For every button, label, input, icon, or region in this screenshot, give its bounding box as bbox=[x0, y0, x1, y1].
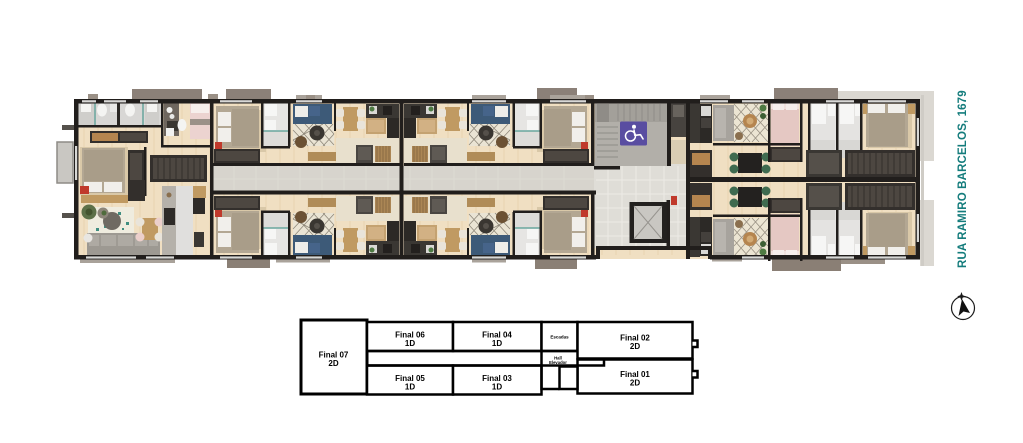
svg-text:2D: 2D bbox=[630, 342, 640, 351]
svg-text:1D: 1D bbox=[492, 383, 502, 392]
svg-text:1D: 1D bbox=[492, 339, 502, 348]
svg-text:1D: 1D bbox=[405, 339, 415, 348]
svg-text:2D: 2D bbox=[630, 379, 640, 388]
svg-text:1D: 1D bbox=[405, 383, 415, 392]
svg-text:2D: 2D bbox=[328, 359, 338, 368]
svg-text:Elevador: Elevador bbox=[549, 360, 567, 365]
svg-text:RUA RAMIRO BARCELOS, 1679: RUA RAMIRO BARCELOS, 1679 bbox=[957, 90, 969, 268]
svg-text:Escadas: Escadas bbox=[550, 335, 569, 340]
